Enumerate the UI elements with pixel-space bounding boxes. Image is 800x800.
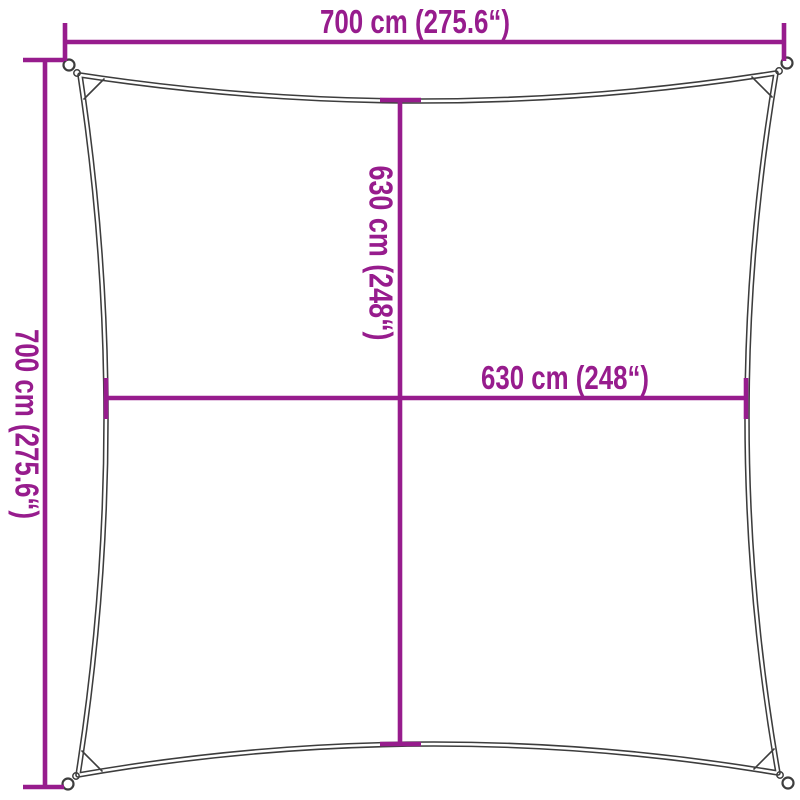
dimension-inner-width: 630 cm (248“) [106, 359, 746, 419]
sail-outline [78, 73, 778, 775]
corner-ring-top-left [64, 60, 75, 71]
corner-fold-top-right [752, 77, 772, 97]
dimension-left-height: 700 cm (275.6“) [9, 60, 65, 787]
diagram-canvas: 700 cm (275.6“) 700 cm (275.6“) 630 cm (… [0, 0, 800, 800]
dimension-label-top-width: 700 cm (275.6“) [320, 3, 510, 40]
corner-ring-bottom-right [783, 778, 794, 789]
dimension-label-inner-height: 630 cm (248“) [363, 166, 400, 341]
corner-fold-bottom-right [754, 749, 774, 769]
sail-shape [63, 58, 794, 790]
corner-fold-bottom-left [82, 751, 102, 771]
corner-fold-top-left [84, 79, 104, 99]
sail-outline-core [78, 73, 778, 775]
dimension-diagram: 700 cm (275.6“) 700 cm (275.6“) 630 cm (… [0, 0, 800, 800]
dimension-top-width: 700 cm (275.6“) [65, 3, 784, 61]
corner-ring-bottom-left [63, 779, 74, 790]
dimension-inner-height: 630 cm (248“) [363, 100, 422, 744]
dimension-label-inner-width: 630 cm (248“) [481, 359, 649, 396]
dimension-label-left-height: 700 cm (275.6“) [9, 329, 46, 519]
